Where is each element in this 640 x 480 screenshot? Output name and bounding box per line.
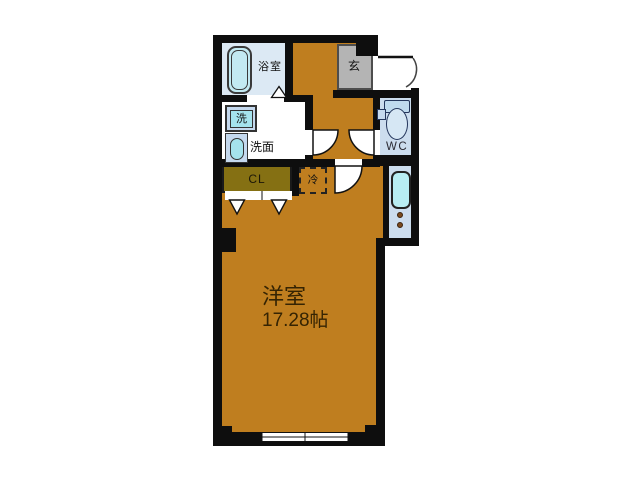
kitchen-sink	[391, 171, 411, 209]
wall-kitchen-left	[383, 166, 389, 238]
floor-plan: CL 洗 冷	[0, 0, 640, 480]
wall-closet-right	[292, 164, 299, 196]
wall-pillar-left	[222, 228, 236, 252]
closet-box: CL	[222, 165, 292, 193]
front-door-opening	[373, 35, 420, 90]
bathtub-inner-line	[231, 50, 248, 90]
door-gap-mainroom	[335, 159, 362, 167]
wall-mainroom-right	[376, 238, 385, 446]
main-room-label: 洋室 17.28帖	[262, 284, 329, 333]
wall-right-outer	[411, 88, 419, 246]
footprint-lower	[213, 242, 385, 446]
washer-label: 洗	[236, 114, 247, 125]
main-room-name: 洋室	[262, 284, 329, 310]
wall-left	[213, 35, 222, 446]
main-room-size: 17.28帖	[262, 310, 329, 333]
toilet-bowl	[386, 108, 408, 140]
door-gap-wc	[373, 130, 380, 155]
door-gap-bathroom	[247, 95, 284, 102]
closet-label: CL	[248, 173, 265, 185]
wall-bottom	[213, 432, 385, 446]
stove-burner-2	[397, 222, 403, 228]
wc-label: WC	[386, 142, 408, 154]
toilet-control	[377, 109, 386, 120]
wall-corner-bottom-right	[365, 425, 385, 446]
washbasin-bowl	[230, 138, 244, 160]
fridge-label: 冷	[308, 175, 319, 186]
wall-corner-entrance	[356, 35, 378, 56]
entrance-label: 玄	[348, 60, 360, 72]
bathroom-label: 浴室	[258, 62, 282, 73]
washroom-label: 洗面	[250, 141, 274, 153]
wall-bathroom-right	[285, 41, 293, 101]
wall-above-wc	[333, 90, 419, 98]
bathtub	[227, 46, 252, 94]
fridge-space: 冷	[299, 167, 327, 194]
washing-machine-tub: 洗	[230, 110, 253, 128]
door-gap-washroom	[305, 130, 313, 155]
stove-burner-1	[397, 212, 403, 218]
wall-corner-bottom-left	[213, 426, 232, 446]
